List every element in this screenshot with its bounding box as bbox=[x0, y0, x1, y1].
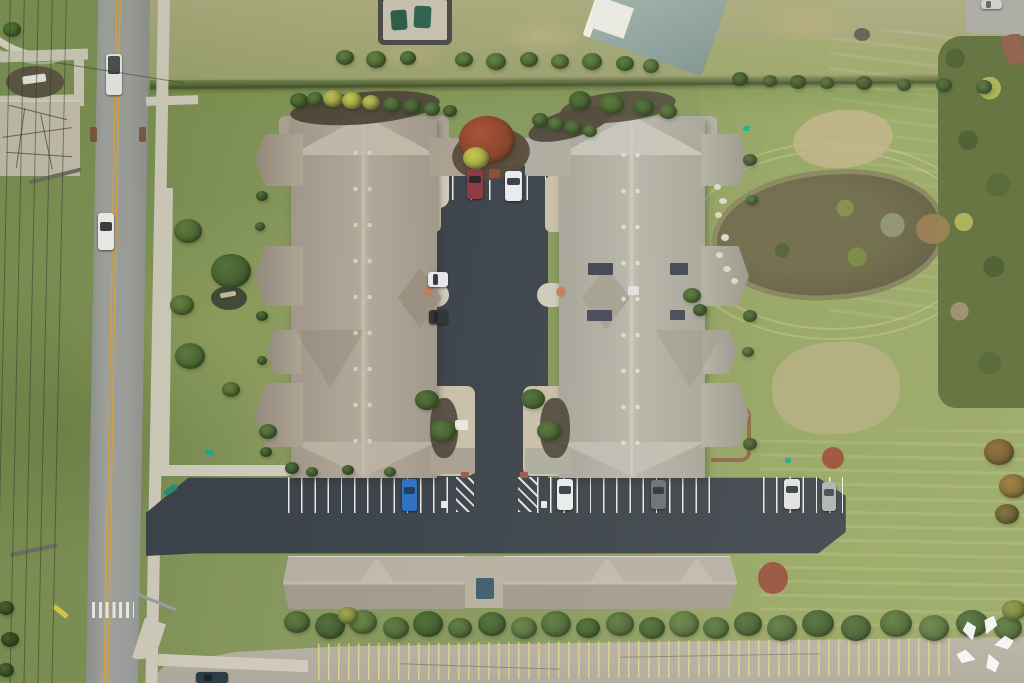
dirt-spot-top bbox=[854, 28, 870, 41]
bush bbox=[548, 117, 564, 131]
bush bbox=[683, 288, 701, 303]
pond-rock bbox=[716, 252, 723, 258]
red-bush-south bbox=[758, 562, 788, 594]
row-tree bbox=[383, 617, 409, 639]
bush bbox=[443, 105, 457, 117]
car-glass bbox=[507, 178, 519, 185]
yellow-bush bbox=[463, 147, 489, 169]
skylight-panel bbox=[670, 310, 685, 320]
car-glass bbox=[433, 274, 438, 284]
ditch-bush bbox=[790, 75, 806, 89]
yellow-bush bbox=[362, 95, 380, 110]
bush bbox=[1, 632, 19, 647]
tree bbox=[520, 52, 538, 67]
ditch-bush bbox=[820, 77, 834, 89]
tree bbox=[222, 382, 240, 397]
wheelchair-stall-mark bbox=[441, 501, 447, 508]
row-tree bbox=[448, 618, 472, 638]
bush bbox=[403, 99, 421, 114]
bush bbox=[257, 356, 267, 365]
row-tree bbox=[1002, 600, 1024, 620]
bush bbox=[342, 465, 354, 475]
aerial-photo bbox=[0, 0, 1024, 683]
bush bbox=[256, 191, 268, 201]
row-tree bbox=[994, 616, 1022, 640]
driveway-south bbox=[146, 470, 850, 556]
row-tree bbox=[606, 612, 634, 636]
tree bbox=[486, 53, 506, 70]
tree bbox=[582, 53, 602, 70]
utility-box-west bbox=[455, 420, 468, 430]
transformer-green-a bbox=[390, 9, 407, 30]
tree bbox=[415, 390, 439, 410]
crack-line bbox=[9, 105, 67, 120]
row-tree bbox=[511, 617, 537, 639]
tree bbox=[600, 94, 624, 114]
bush bbox=[583, 125, 597, 137]
walkway-above-driveway bbox=[154, 465, 292, 476]
tree bbox=[659, 104, 677, 119]
car-glass bbox=[786, 486, 798, 493]
parked-suv-white bbox=[428, 272, 448, 287]
tree bbox=[170, 295, 194, 315]
bush bbox=[384, 467, 396, 477]
tree bbox=[634, 99, 654, 116]
stall-lines-a bbox=[288, 477, 458, 513]
row-tree bbox=[880, 610, 912, 637]
parked-car-dark bbox=[429, 310, 448, 324]
car-street-south bbox=[196, 672, 228, 683]
row-tree bbox=[919, 615, 949, 641]
bush bbox=[564, 120, 582, 135]
tree bbox=[455, 52, 473, 67]
handicap-hatch-b bbox=[518, 477, 537, 512]
car-glass bbox=[204, 674, 212, 681]
curb-mark-red-b bbox=[461, 472, 469, 478]
apartment-west-stub bbox=[267, 330, 301, 374]
car-glass bbox=[559, 486, 571, 493]
apartment-west-ridge-vents bbox=[352, 148, 359, 472]
row-tree bbox=[802, 610, 834, 637]
crack-line bbox=[6, 152, 72, 158]
tree bbox=[537, 421, 561, 441]
parked-car-white-1 bbox=[557, 479, 573, 510]
bush bbox=[383, 97, 401, 112]
garage-building-east-segment bbox=[503, 556, 737, 609]
bush bbox=[285, 462, 299, 474]
wheelchair-stall-mark bbox=[541, 501, 547, 508]
tree bbox=[551, 54, 569, 69]
parked-car-white-2 bbox=[784, 479, 800, 509]
apartment-east-ridge-vents bbox=[620, 150, 627, 468]
parked-car-blue bbox=[402, 479, 417, 511]
car-glass bbox=[100, 222, 112, 231]
tree bbox=[616, 56, 634, 71]
parked-car-gray bbox=[651, 480, 666, 509]
tree bbox=[259, 424, 277, 439]
teal-marker-c bbox=[743, 126, 750, 131]
house-north-wing bbox=[588, 0, 634, 39]
tree bbox=[400, 51, 416, 65]
bush bbox=[0, 601, 14, 615]
tree bbox=[3, 22, 21, 37]
tree bbox=[174, 219, 202, 243]
ditch-bush bbox=[732, 72, 748, 86]
car-glass bbox=[824, 489, 834, 496]
autumn-tree bbox=[995, 504, 1019, 524]
bush bbox=[256, 311, 268, 321]
teal-marker-b bbox=[785, 458, 791, 463]
row-tree bbox=[956, 610, 988, 637]
pond-rock bbox=[715, 212, 722, 218]
bush bbox=[0, 663, 14, 677]
row-tree bbox=[734, 612, 762, 636]
sidewalk-nw-vert bbox=[74, 52, 84, 106]
row-tree bbox=[413, 611, 443, 637]
pond-rock bbox=[721, 234, 729, 241]
car-on-road bbox=[98, 213, 114, 250]
bush bbox=[743, 438, 757, 450]
row-tree bbox=[576, 618, 600, 638]
skylight-panel bbox=[670, 263, 688, 275]
skylight-panel bbox=[587, 310, 612, 321]
bench-nook bbox=[211, 286, 247, 310]
row-tree bbox=[478, 612, 506, 636]
crack-line bbox=[2, 127, 71, 138]
apartment-west-wing-2 bbox=[255, 246, 303, 306]
row-tree bbox=[541, 611, 571, 637]
tree bbox=[211, 254, 251, 288]
crosswalk bbox=[92, 602, 134, 618]
ditch-bush bbox=[763, 75, 777, 87]
tree bbox=[643, 59, 659, 73]
apartment-west-wing-1 bbox=[255, 134, 303, 186]
bush bbox=[743, 154, 757, 166]
row-tree bbox=[669, 611, 699, 637]
parked-car-red bbox=[467, 169, 483, 199]
pond-sediment bbox=[916, 214, 950, 244]
pond-rock bbox=[731, 278, 738, 284]
row-tree bbox=[338, 607, 358, 624]
ditch-bush bbox=[936, 78, 952, 92]
handicap-hatch-a bbox=[456, 477, 474, 512]
apartment-west-ridge bbox=[362, 118, 365, 474]
bush bbox=[424, 102, 440, 116]
car-glass bbox=[469, 176, 481, 183]
walkway-to-road bbox=[146, 95, 198, 106]
bush bbox=[746, 195, 758, 205]
parked-car-silver bbox=[822, 482, 836, 511]
bush bbox=[255, 222, 265, 231]
bush bbox=[260, 447, 272, 457]
dumpster bbox=[476, 578, 494, 599]
bush bbox=[306, 467, 318, 477]
walk-tip-orange-west bbox=[423, 287, 433, 297]
apartment-west-ridge-vents bbox=[366, 148, 373, 472]
parked-car-white-north bbox=[505, 171, 522, 201]
car-glass bbox=[404, 487, 415, 495]
bush bbox=[290, 93, 308, 108]
road-rust-a bbox=[90, 127, 97, 142]
tree bbox=[430, 420, 456, 442]
bush bbox=[743, 310, 757, 322]
ditch-bush bbox=[976, 80, 992, 94]
skylight-panel bbox=[588, 263, 613, 275]
apartment-east-ridge-vents bbox=[634, 150, 641, 468]
car-driveway-ne bbox=[981, 0, 1002, 9]
row-tree bbox=[703, 617, 729, 639]
autumn-tree bbox=[999, 474, 1024, 498]
apartment-east-ridge bbox=[630, 118, 633, 474]
car-glass bbox=[653, 487, 664, 494]
row-tree bbox=[639, 617, 665, 639]
apartment-east-porch-north bbox=[525, 138, 571, 176]
pickup-bed bbox=[108, 56, 121, 72]
ditch-bush bbox=[897, 79, 911, 91]
utility-box-east bbox=[628, 286, 639, 295]
tree bbox=[569, 91, 591, 110]
pond-rock bbox=[714, 184, 721, 190]
tree bbox=[175, 343, 205, 369]
red-bush-east bbox=[822, 447, 844, 469]
pond-rock bbox=[723, 266, 731, 272]
road-rust-b bbox=[139, 127, 146, 142]
ditch-bush bbox=[856, 76, 872, 90]
row-tree bbox=[767, 615, 797, 641]
bush bbox=[307, 92, 323, 106]
bush bbox=[693, 304, 707, 316]
crack-line bbox=[16, 108, 25, 168]
pond-rock bbox=[719, 198, 727, 204]
car-glass bbox=[986, 1, 991, 7]
cracked-pavement-pad bbox=[0, 100, 80, 176]
crack-line bbox=[40, 115, 53, 170]
bush bbox=[532, 113, 548, 127]
transformer-green-b bbox=[413, 6, 431, 29]
tree bbox=[366, 51, 386, 68]
walk-tip-orange-east bbox=[556, 287, 566, 297]
teal-marker-a bbox=[205, 449, 215, 456]
autumn-tree bbox=[984, 439, 1014, 465]
row-tree bbox=[841, 615, 871, 641]
tree bbox=[336, 50, 354, 65]
curb-mark-red-a bbox=[489, 169, 500, 178]
curb-mark-red-c bbox=[520, 472, 528, 478]
row-tree bbox=[284, 611, 310, 633]
bush bbox=[742, 347, 754, 357]
yellow-bush bbox=[323, 90, 343, 107]
guy-marker-yellow bbox=[52, 604, 68, 618]
street-stall-stripes-yellow bbox=[318, 638, 950, 681]
yellow-bush bbox=[342, 92, 362, 109]
pickup-truck-on-road bbox=[106, 54, 122, 95]
tree bbox=[521, 389, 545, 409]
power-pole-crossarm-south bbox=[10, 543, 58, 557]
car-glass bbox=[434, 312, 439, 322]
